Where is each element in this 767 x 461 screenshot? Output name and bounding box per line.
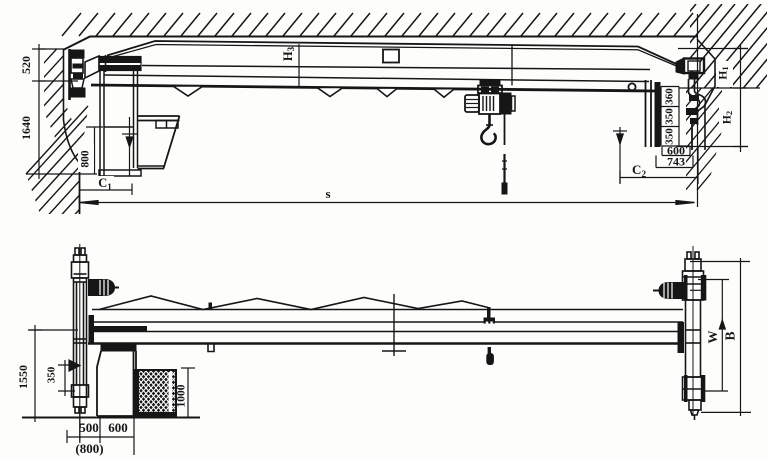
svg-text:H1: H1 (718, 66, 731, 79)
svg-text:743: 743 (667, 155, 685, 169)
svg-text:1000: 1000 (176, 384, 188, 407)
svg-text:800: 800 (80, 150, 92, 168)
svg-text:520: 520 (19, 56, 33, 74)
svg-text:350: 350 (46, 366, 58, 383)
svg-text:360: 360 (664, 88, 676, 105)
svg-text:H2: H2 (722, 111, 735, 124)
svg-text:350: 350 (664, 108, 676, 125)
svg-text:1550: 1550 (16, 365, 30, 389)
svg-text:s: s (325, 186, 330, 201)
svg-text:(800): (800) (75, 441, 103, 456)
svg-text:350: 350 (664, 128, 676, 145)
svg-text:1640: 1640 (19, 116, 33, 140)
svg-text:W: W (705, 331, 720, 344)
svg-text:B: B (723, 331, 738, 340)
svg-text:600: 600 (108, 420, 128, 435)
svg-text:500: 500 (79, 420, 99, 435)
